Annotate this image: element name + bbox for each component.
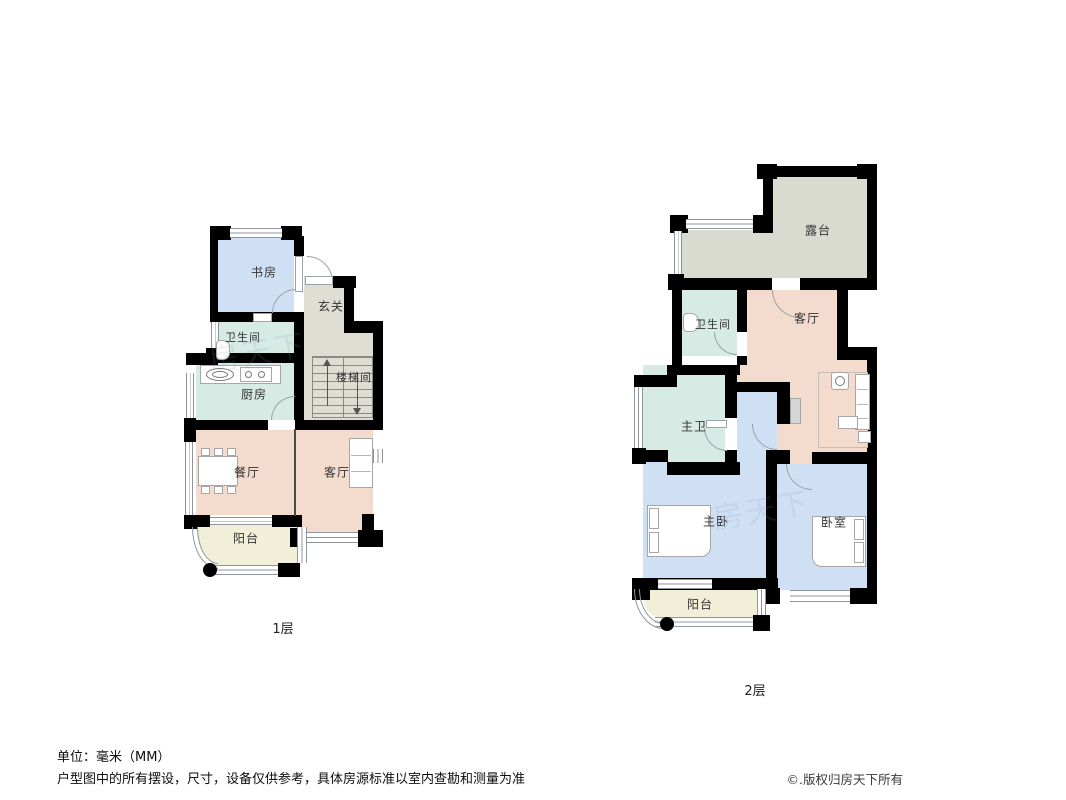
wall: [634, 375, 677, 387]
wall: [344, 276, 354, 323]
stair-up-arrowhead: [323, 359, 331, 366]
bedroom2-bed-pillow: [854, 542, 864, 563]
staircase: [312, 356, 373, 418]
dining-chair: [201, 448, 210, 456]
room-hallway: [790, 452, 812, 464]
study-door: [295, 256, 303, 292]
bathroom2-door-gap: [737, 332, 747, 356]
bedroom2-bed-pillow: [854, 519, 864, 540]
wall: [638, 450, 668, 462]
window: [686, 219, 753, 229]
window: [297, 527, 307, 563]
window: [790, 590, 850, 602]
wall: [294, 322, 304, 429]
wall: [358, 530, 383, 547]
ottoman: [858, 431, 871, 443]
wall: [210, 228, 218, 322]
master-bed-pillow: [649, 508, 659, 529]
floorplan-canvas: 书房 玄关 卫生间 厨房 楼梯间 餐厅 客厅 阳台 1层 房天下: [0, 0, 1066, 800]
terrace-door-gap: [772, 278, 800, 290]
wall: [766, 450, 777, 592]
balcony2-corner-post: [660, 617, 674, 631]
stove-burner: [258, 371, 265, 378]
wall: [850, 588, 877, 604]
wall: [196, 353, 294, 363]
master-bath-door: [706, 420, 727, 428]
window: [186, 373, 194, 418]
dining-chair: [201, 486, 210, 494]
disclaimer-note: 户型图中的所有摆设，尺寸，设备仅供参考，具体房源标准以室内查勘和测量为准: [57, 768, 525, 787]
stair-divider: [343, 357, 344, 417]
wall: [344, 321, 383, 333]
wall: [753, 215, 773, 233]
dining-chair: [227, 486, 236, 494]
kitchen-sink-basin: [212, 371, 228, 378]
wall: [667, 462, 740, 475]
kitchen-door-gap: [268, 420, 295, 430]
room-label-balcony1: 阳台: [233, 530, 259, 547]
dining-chair: [214, 486, 223, 494]
window: [230, 228, 282, 238]
window: [674, 231, 682, 276]
wall: [362, 514, 374, 532]
room-label-bathroom2: 卫生间: [695, 316, 731, 332]
window: [212, 565, 280, 575]
coffee-table: [838, 416, 858, 429]
wall: [672, 288, 682, 365]
bathroom1-door: [253, 313, 272, 322]
room-label-bathroom1: 卫生间: [225, 329, 261, 345]
window: [373, 449, 383, 463]
stove-burner: [245, 371, 252, 378]
room-label-living2: 客厅: [794, 310, 820, 327]
room-label-kitchen: 厨房: [241, 386, 267, 403]
master-bed-pillow: [649, 532, 659, 553]
window: [306, 532, 358, 543]
room-terrace-b: [682, 230, 765, 280]
balcony2-curve: [639, 589, 664, 624]
room-label-living1: 客厅: [324, 464, 350, 481]
floor1-caption: 1层: [272, 618, 293, 637]
room-label-master-bedroom: 主卧: [703, 513, 729, 530]
wall: [272, 515, 302, 527]
balcony1-door-window: [210, 517, 272, 525]
room-label-foyer: 玄关: [318, 298, 344, 315]
copyright-note: ©.版权归房天下所有: [787, 769, 903, 788]
sofa: [349, 438, 373, 488]
dining-chair: [227, 448, 236, 456]
room-label-bedroom2: 卧室: [821, 514, 847, 531]
dining-table: [198, 456, 238, 486]
wall: [837, 278, 848, 354]
window: [634, 387, 643, 448]
balcony1-corner-post: [203, 563, 217, 577]
side-table-lamp: [835, 376, 845, 386]
balcony2-door-window: [658, 579, 712, 589]
window: [185, 442, 193, 515]
wall: [192, 515, 210, 527]
wall: [867, 166, 877, 290]
stair-up-arrow: [327, 366, 328, 406]
window: [757, 589, 766, 617]
room-label-balcony2: 阳台: [687, 596, 713, 613]
room-label-stairwell: 楼梯间: [336, 369, 372, 385]
dining-living-divider: [294, 429, 296, 516]
stair-down-arrowhead: [353, 408, 361, 415]
room-label-dining: 餐厅: [234, 464, 260, 481]
entry-door: [305, 276, 333, 285]
wall: [777, 382, 790, 424]
wall: [777, 450, 790, 464]
room-label-study: 书房: [251, 264, 277, 281]
room-label-master-bath: 主卫: [681, 418, 707, 435]
wall: [373, 333, 383, 429]
floor2-caption: 2层: [744, 680, 765, 699]
tv: [790, 398, 801, 424]
wall: [278, 563, 300, 577]
room-label-terrace: 露台: [805, 222, 831, 239]
unit-note: 单位：毫米（MM）: [57, 746, 170, 765]
wall: [753, 615, 770, 631]
wall: [294, 236, 304, 256]
dining-chair: [214, 448, 223, 456]
